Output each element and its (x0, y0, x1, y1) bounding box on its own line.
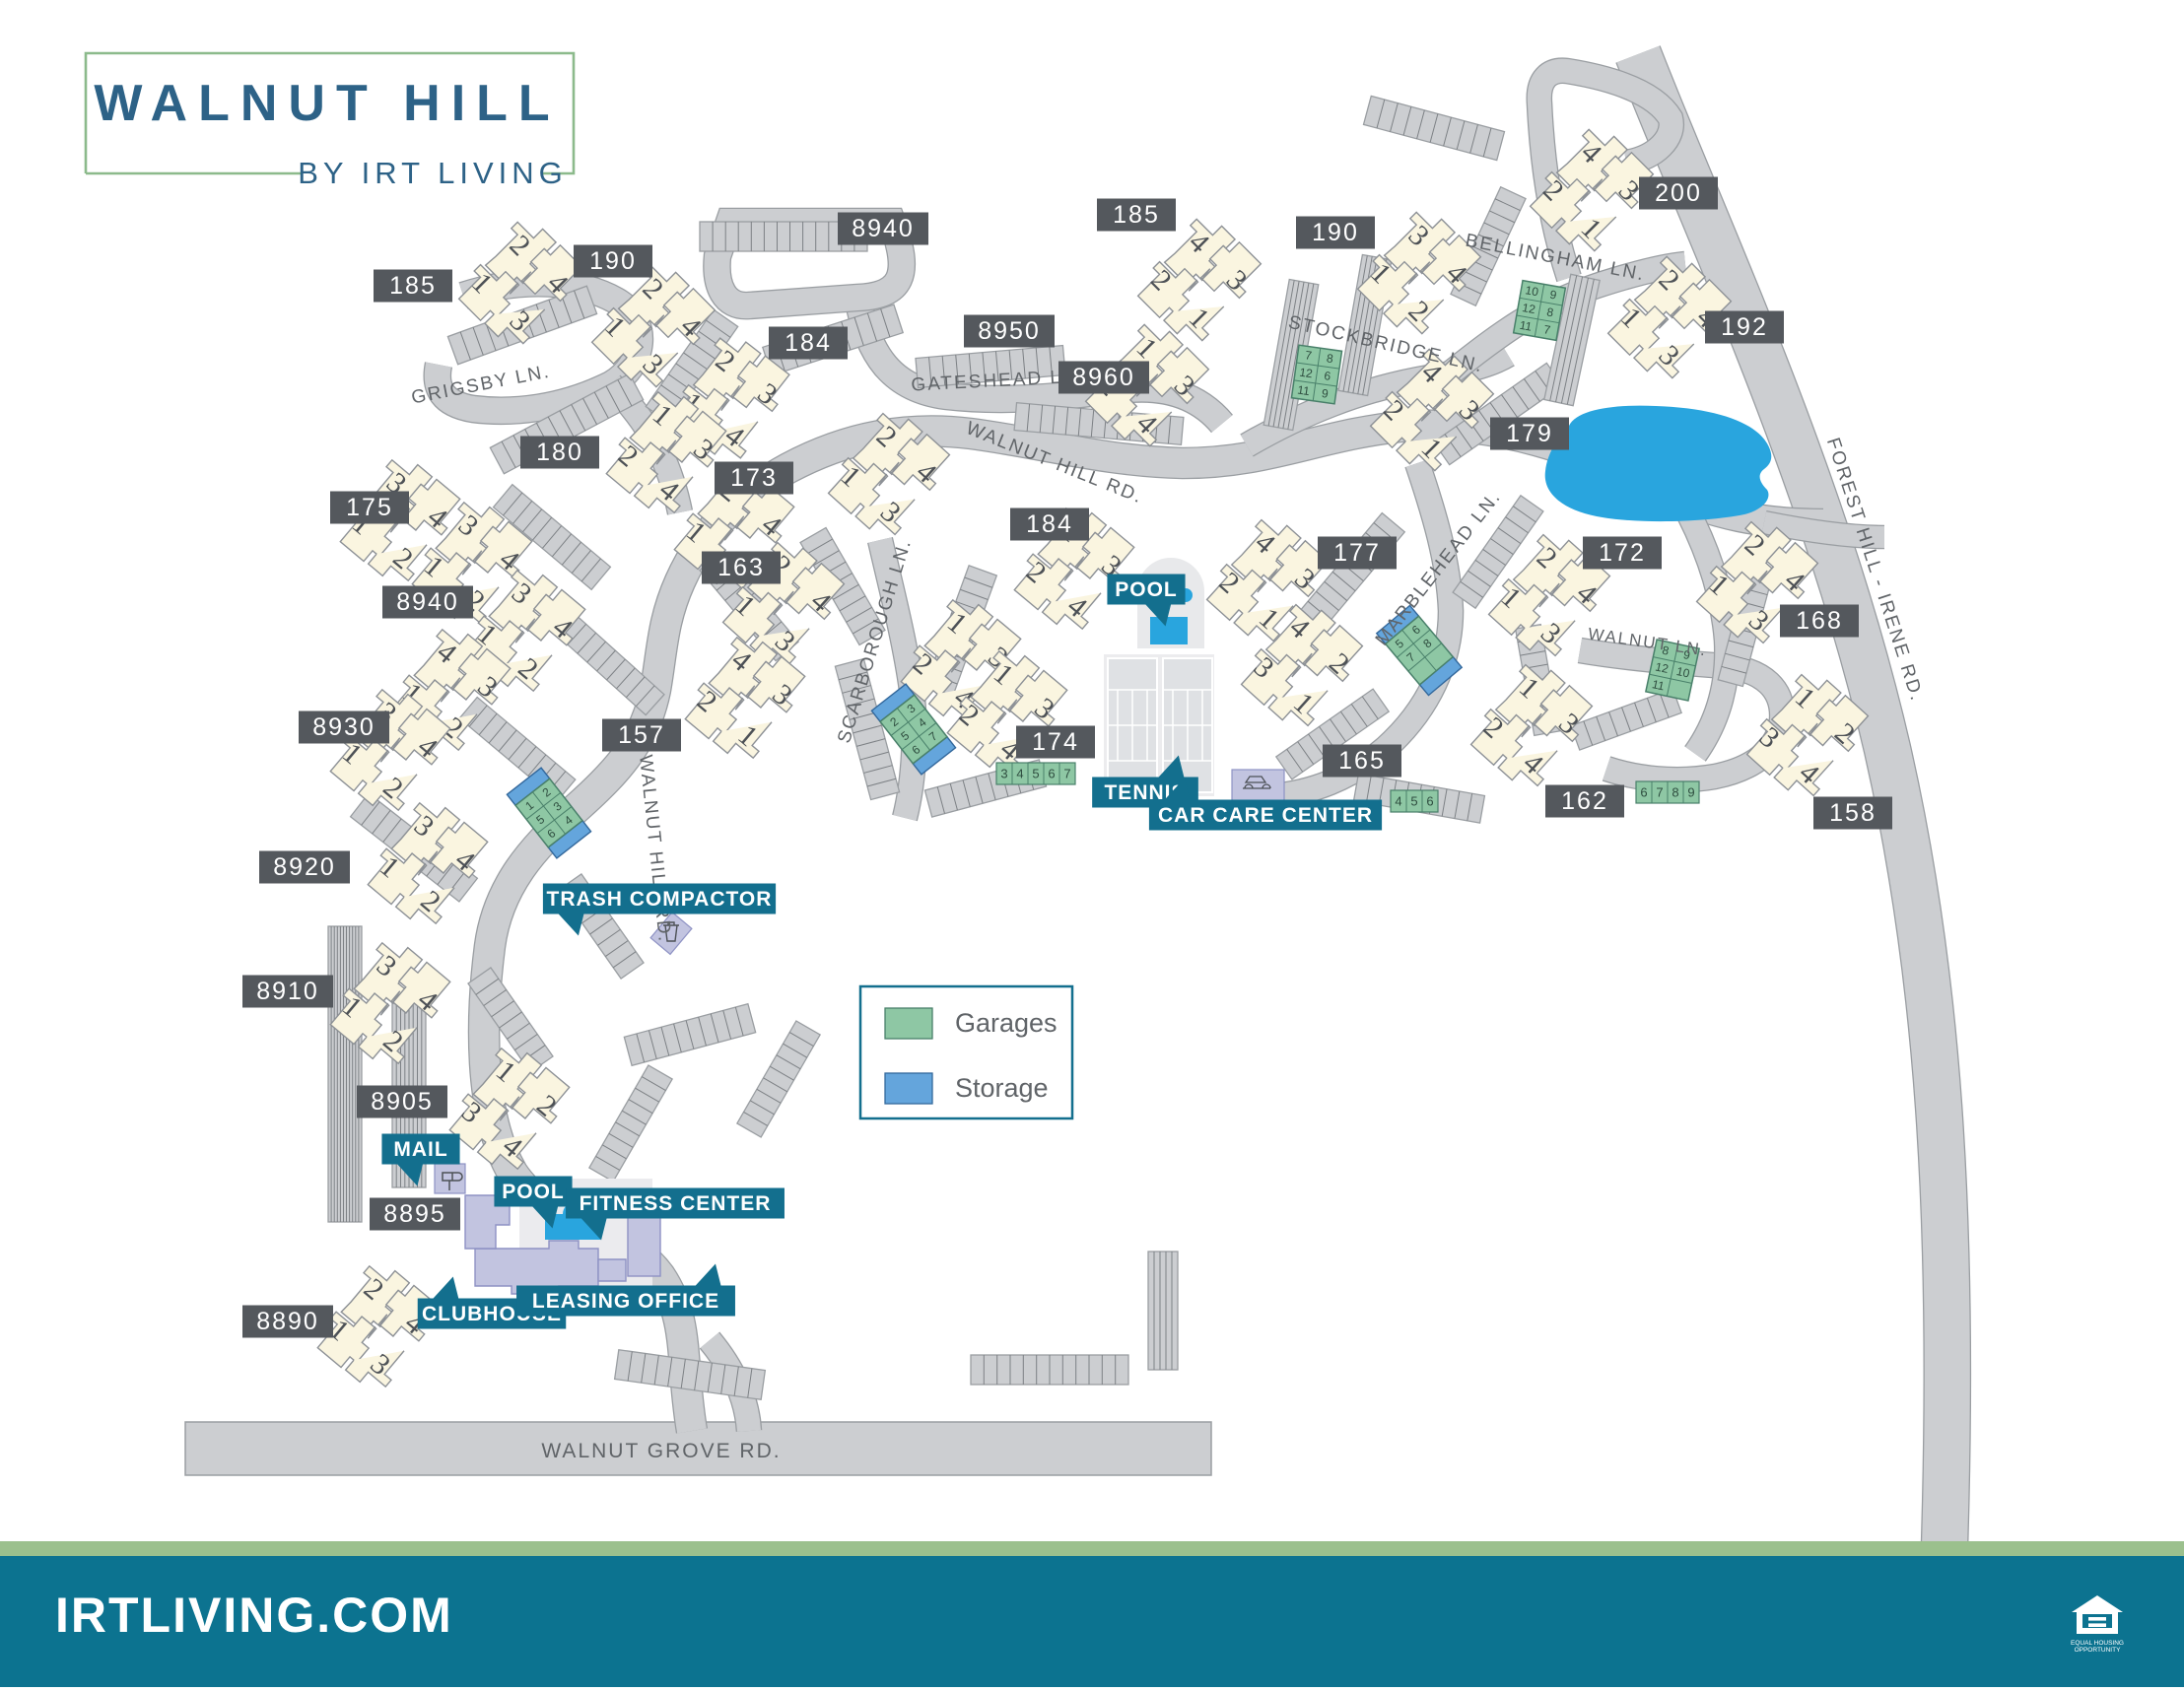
svg-text:8950: 8950 (978, 317, 1041, 345)
svg-text:6: 6 (1426, 794, 1433, 809)
svg-text:185: 185 (389, 272, 437, 300)
svg-text:177: 177 (1333, 539, 1381, 567)
svg-text:FITNESS CENTER: FITNESS CENTER (580, 1192, 772, 1215)
svg-text:Storage: Storage (955, 1073, 1049, 1103)
svg-text:7: 7 (1656, 785, 1663, 800)
svg-text:LEASING OFFICE: LEASING OFFICE (532, 1290, 719, 1313)
svg-text:TRASH COMPACTOR: TRASH COMPACTOR (547, 888, 773, 911)
svg-text:OPPORTUNITY: OPPORTUNITY (2075, 1647, 2121, 1654)
svg-text:158: 158 (1829, 799, 1877, 827)
svg-text:6: 6 (1640, 785, 1647, 800)
svg-text:168: 168 (1796, 607, 1843, 635)
svg-text:8940: 8940 (852, 215, 915, 242)
svg-text:WALNUT GROVE RD.: WALNUT GROVE RD. (541, 1440, 781, 1462)
svg-text:8930: 8930 (312, 713, 375, 741)
svg-text:Garages: Garages (955, 1008, 1058, 1038)
svg-text:8890: 8890 (256, 1308, 319, 1335)
svg-text:7: 7 (1063, 767, 1070, 781)
svg-text:174: 174 (1032, 728, 1079, 756)
svg-text:12: 12 (1299, 366, 1314, 381)
svg-text:6: 6 (1048, 767, 1055, 781)
svg-text:8920: 8920 (273, 853, 336, 881)
svg-text:8905: 8905 (371, 1088, 434, 1116)
svg-text:175: 175 (346, 494, 393, 521)
svg-text:200: 200 (1655, 179, 1702, 207)
svg-text:157: 157 (618, 721, 665, 749)
svg-text:10: 10 (1524, 283, 1539, 299)
svg-text:8940: 8940 (396, 588, 459, 616)
svg-text:179: 179 (1506, 420, 1553, 447)
svg-text:9: 9 (1687, 785, 1694, 800)
svg-text:173: 173 (730, 464, 778, 492)
svg-text:BY IRT LIVING: BY IRT LIVING (298, 156, 567, 190)
svg-text:8960: 8960 (1072, 364, 1135, 391)
svg-text:WALNUT HILL: WALNUT HILL (94, 75, 560, 132)
svg-text:MAIL: MAIL (393, 1138, 447, 1161)
svg-text:184: 184 (785, 329, 832, 357)
svg-text:12: 12 (1521, 301, 1536, 316)
svg-text:CAR CARE CENTER: CAR CARE CENTER (1158, 804, 1373, 827)
svg-text:EQUAL HOUSING: EQUAL HOUSING (2071, 1640, 2124, 1647)
svg-text:162: 162 (1561, 787, 1608, 815)
svg-text:184: 184 (1026, 510, 1073, 538)
svg-text:180: 180 (536, 439, 583, 466)
svg-text:163: 163 (717, 554, 765, 581)
svg-text:5: 5 (1032, 767, 1039, 781)
svg-text:4: 4 (1016, 767, 1023, 781)
svg-text:POOL: POOL (1115, 578, 1178, 601)
svg-text:172: 172 (1599, 539, 1646, 567)
svg-text:190: 190 (589, 247, 637, 275)
svg-text:8: 8 (1672, 785, 1678, 800)
svg-text:4: 4 (1395, 794, 1401, 809)
svg-text:IRTLIVING.COM: IRTLIVING.COM (55, 1588, 453, 1643)
svg-text:185: 185 (1113, 201, 1160, 229)
svg-text:5: 5 (1410, 794, 1417, 809)
svg-text:190: 190 (1312, 219, 1359, 246)
svg-text:165: 165 (1338, 747, 1386, 775)
svg-text:8895: 8895 (383, 1200, 446, 1228)
svg-text:11: 11 (1296, 382, 1311, 398)
svg-text:192: 192 (1721, 313, 1768, 341)
svg-text:3: 3 (1000, 767, 1007, 781)
svg-text:POOL: POOL (502, 1181, 565, 1203)
svg-text:8910: 8910 (256, 978, 319, 1005)
